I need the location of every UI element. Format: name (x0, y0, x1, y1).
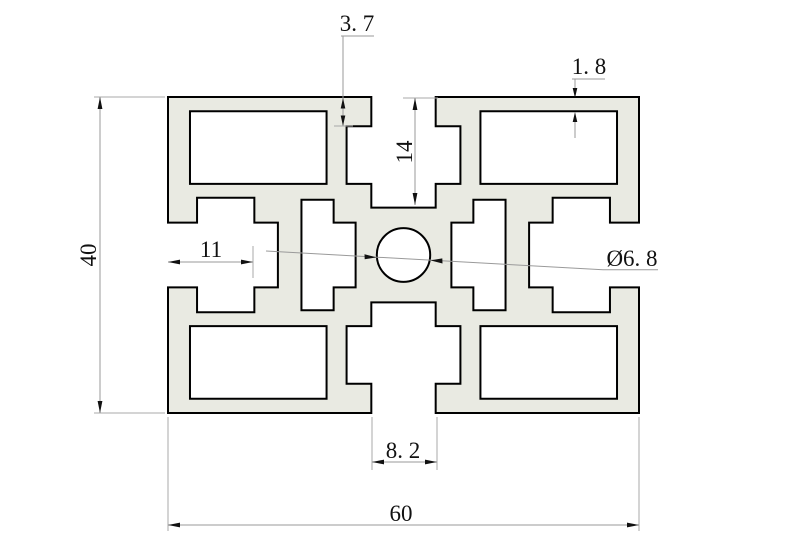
arrowhead-up (98, 97, 103, 109)
arrowhead-left (372, 460, 384, 465)
profile-technical-drawing: 40 60 11 14 3. 7 1. 8 (0, 0, 804, 557)
arrowhead-right (241, 260, 253, 265)
dim-label-center-hole-diameter: Ø6. 8 (606, 246, 657, 271)
dim-label-slot-opening-width: 8. 2 (386, 438, 421, 463)
dim-label-overall-height: 40 (76, 244, 101, 267)
dim-slot-opening-width: 8. 2 (372, 417, 437, 470)
technical-drawing-canvas: 40 60 11 14 3. 7 1. 8 (0, 0, 804, 557)
dim-side-slot-depth: 11 (168, 237, 253, 278)
arrowhead-left (168, 260, 180, 265)
dim-overall-height: 40 (76, 97, 165, 413)
dim-label-top-wall-thickness: 1. 8 (572, 54, 607, 79)
dim-label-side-slot-depth: 11 (200, 237, 222, 262)
dim-label-overall-width: 60 (390, 501, 413, 526)
arrowhead-up (573, 112, 578, 122)
dim-overall-width: 60 (168, 417, 639, 531)
dim-label-top-slot-depth: 14 (392, 140, 417, 164)
arrowhead-up (413, 98, 418, 110)
arrowhead-right (627, 523, 639, 528)
arrowhead-right (425, 460, 437, 465)
dim-label-slot-lip-depth: 3. 7 (340, 11, 375, 36)
arrowhead-down (98, 401, 103, 413)
arrowhead-left (168, 523, 180, 528)
dim-top-slot-depth: 14 (392, 98, 438, 205)
dim-center-hole: Ø6. 8 (266, 246, 658, 271)
arrowhead-down (413, 193, 418, 205)
